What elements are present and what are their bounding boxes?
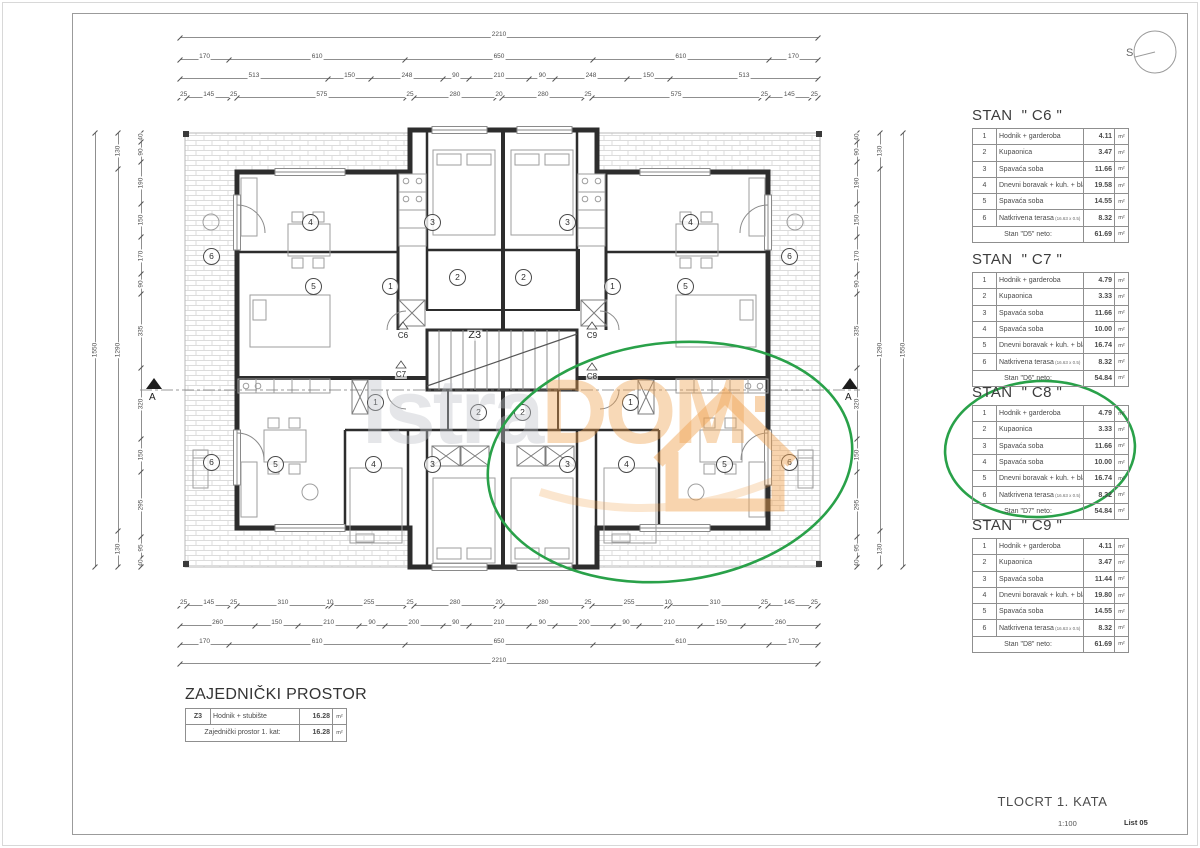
room-area: 4.79 xyxy=(1084,273,1115,289)
total-row: Stan "D5" neto:61.69m² xyxy=(973,226,1129,242)
total-area: 61.69 xyxy=(1084,226,1115,242)
room-area: 14.55 xyxy=(1084,194,1115,210)
room-number: 6 xyxy=(973,210,997,226)
room-area: 16.28 xyxy=(300,709,333,725)
room-number: 2 xyxy=(973,145,997,161)
room-name: Natkrivena terasa (16.63 x 0.5) xyxy=(997,487,1084,503)
area-unit: m² xyxy=(1115,454,1129,470)
room-name: Dnevni boravak + kuh. + blag. xyxy=(997,587,1084,603)
room-name: Natkrivena terasa (16.63 x 0.5) xyxy=(997,620,1084,636)
room-row: 2Kupaonica3.47m² xyxy=(973,555,1129,571)
area-unit: m² xyxy=(1115,273,1129,289)
area-unit: m² xyxy=(1115,555,1129,571)
room-number: 5 xyxy=(973,604,997,620)
room-name-note: (16.63 x 0.5) xyxy=(1054,216,1081,221)
room-number: 2 xyxy=(973,422,997,438)
room-name: Spavaća soba xyxy=(997,321,1084,337)
apartment-block: STAN " C6 "1Hodnik + garderoba4.11m²2Kup… xyxy=(972,107,1130,243)
area-unit: m² xyxy=(1115,226,1129,242)
sheet-number: List 05 xyxy=(1124,818,1148,827)
room-name-note: (16.63 x 0.5) xyxy=(1054,493,1081,498)
room-number: 5 xyxy=(973,338,997,354)
area-table: 1Hodnik + garderoba4.79m²2Kupaonica3.33m… xyxy=(972,272,1129,387)
apartment-title: STAN " C6 " xyxy=(972,107,1130,124)
drawing-sheet: 435126341526123456123456C6Z3C9C7C8221017… xyxy=(0,0,1200,848)
room-name: Spavaća soba xyxy=(997,161,1084,177)
room-name: Natkrivena terasa (16.63 x 0.5) xyxy=(997,354,1084,370)
room-number: 1 xyxy=(973,406,997,422)
area-unit: m² xyxy=(1115,145,1129,161)
room-area: 4.11 xyxy=(1084,129,1115,145)
total-label: Stan "D5" neto: xyxy=(973,226,1084,242)
area-unit: m² xyxy=(1115,161,1129,177)
area-unit: m² xyxy=(1115,305,1129,321)
room-row: 5Spavaća soba14.55m² xyxy=(973,194,1129,210)
room-name: Dnevni boravak + kuh. + blag. xyxy=(997,338,1084,354)
room-area: 10.00 xyxy=(1084,454,1115,470)
room-row: 3Spavaća soba11.66m² xyxy=(973,161,1129,177)
total-label: Zajednički prostor 1. kat: xyxy=(186,725,300,741)
room-name: Dnevni boravak + kuh. + blag. xyxy=(997,471,1084,487)
room-name: Spavaća soba xyxy=(997,604,1084,620)
common-area-table-block: ZAJEDNIČKI PROSTORZ3Hodnik + stubište16.… xyxy=(185,686,445,742)
total-area: 61.69 xyxy=(1084,636,1115,652)
room-row: 1Hodnik + garderoba4.79m² xyxy=(973,273,1129,289)
room-name: Natkrivena terasa (16.63 x 0.5) xyxy=(997,210,1084,226)
room-number: 5 xyxy=(973,471,997,487)
area-unit: m² xyxy=(1115,636,1129,652)
area-unit: m² xyxy=(333,725,347,741)
room-name: Spavaća soba xyxy=(997,305,1084,321)
area-unit: m² xyxy=(1115,487,1129,503)
area-unit: m² xyxy=(1115,210,1129,226)
room-area: 11.44 xyxy=(1084,571,1115,587)
room-name: Kupaonica xyxy=(997,289,1084,305)
room-area: 11.66 xyxy=(1084,161,1115,177)
sheet-scale: 1:100 xyxy=(1058,819,1077,828)
total-area: 16.28 xyxy=(300,725,333,741)
room-name-note: (16.63 x 0.5) xyxy=(1054,360,1081,365)
room-area: 3.33 xyxy=(1084,422,1115,438)
area-unit: m² xyxy=(1115,571,1129,587)
area-unit: m² xyxy=(1115,338,1129,354)
room-area: 8.32 xyxy=(1084,487,1115,503)
room-area: 3.47 xyxy=(1084,555,1115,571)
room-area: 14.55 xyxy=(1084,604,1115,620)
area-unit: m² xyxy=(1115,354,1129,370)
area-table: 1Hodnik + garderoba4.11m²2Kupaonica3.47m… xyxy=(972,538,1129,653)
area-unit: m² xyxy=(1115,620,1129,636)
room-row: 2Kupaonica3.33m² xyxy=(973,289,1129,305)
room-area: 3.33 xyxy=(1084,289,1115,305)
total-row: Zajednički prostor 1. kat:16.28m² xyxy=(186,725,347,741)
room-area: 4.79 xyxy=(1084,406,1115,422)
area-table: Z3Hodnik + stubište16.28m²Zajednički pro… xyxy=(185,708,347,742)
room-number: 3 xyxy=(973,438,997,454)
apartment-block: STAN " C8 "1Hodnik + garderoba4.79m²2Kup… xyxy=(972,384,1130,520)
area-unit: m² xyxy=(1115,438,1129,454)
room-row: 1Hodnik + garderoba4.11m² xyxy=(973,539,1129,555)
room-area: 11.66 xyxy=(1084,305,1115,321)
room-area: 19.58 xyxy=(1084,177,1115,193)
room-number: 5 xyxy=(973,194,997,210)
room-number: 6 xyxy=(973,487,997,503)
room-name: Spavaća soba xyxy=(997,438,1084,454)
room-area: 19.80 xyxy=(1084,587,1115,603)
total-row: Stan "D8" neto:61.69m² xyxy=(973,636,1129,652)
room-number: 1 xyxy=(973,273,997,289)
area-unit: m² xyxy=(1115,604,1129,620)
total-label: Stan "D8" neto: xyxy=(973,636,1084,652)
area-unit: m² xyxy=(1115,539,1129,555)
room-area: 16.74 xyxy=(1084,338,1115,354)
room-row: 4Dnevni boravak + kuh. + blag.19.80m² xyxy=(973,587,1129,603)
room-row: 5Dnevni boravak + kuh. + blag.16.74m² xyxy=(973,471,1129,487)
room-row: 1Hodnik + garderoba4.11m² xyxy=(973,129,1129,145)
room-name: Spavaća soba xyxy=(997,194,1084,210)
room-number: 1 xyxy=(973,539,997,555)
room-name: Kupaonica xyxy=(997,145,1084,161)
room-row: 6Natkrivena terasa (16.63 x 0.5)8.32m² xyxy=(973,487,1129,503)
room-number: 4 xyxy=(973,454,997,470)
common-area-title: ZAJEDNIČKI PROSTOR xyxy=(185,686,445,704)
room-area: 11.66 xyxy=(1084,438,1115,454)
room-area: 4.11 xyxy=(1084,539,1115,555)
room-number: 3 xyxy=(973,161,997,177)
room-row: 6Natkrivena terasa (16.63 x 0.5)8.32m² xyxy=(973,354,1129,370)
room-number: 3 xyxy=(973,305,997,321)
room-area: 16.74 xyxy=(1084,471,1115,487)
room-area: 8.32 xyxy=(1084,210,1115,226)
room-area: 3.47 xyxy=(1084,145,1115,161)
room-name: Hodnik + garderoba xyxy=(997,129,1084,145)
area-unit: m² xyxy=(1115,471,1129,487)
room-name-note: (16.63 x 0.5) xyxy=(1054,626,1081,631)
room-name: Hodnik + garderoba xyxy=(997,406,1084,422)
room-number: 4 xyxy=(973,321,997,337)
room-row: 4Spavaća soba10.00m² xyxy=(973,454,1129,470)
room-row: 4Dnevni boravak + kuh. + blag.19.58m² xyxy=(973,177,1129,193)
room-row: 4Spavaća soba10.00m² xyxy=(973,321,1129,337)
apartment-title: STAN " C7 " xyxy=(972,251,1130,268)
room-number: 2 xyxy=(973,555,997,571)
room-number: 3 xyxy=(973,571,997,587)
room-name: Hodnik + garderoba xyxy=(997,273,1084,289)
room-area: 10.00 xyxy=(1084,321,1115,337)
section-marker-label-left: A xyxy=(149,392,156,403)
compass-north-label: S xyxy=(1126,47,1133,59)
room-name: Kupaonica xyxy=(997,555,1084,571)
room-name: Hodnik + garderoba xyxy=(997,539,1084,555)
room-name: Kupaonica xyxy=(997,422,1084,438)
apartment-title: STAN " C9 " xyxy=(972,517,1130,534)
area-unit: m² xyxy=(1115,194,1129,210)
room-number: 4 xyxy=(973,587,997,603)
area-unit: m² xyxy=(1115,289,1129,305)
section-marker-label-right: A xyxy=(845,392,852,403)
room-number: 4 xyxy=(973,177,997,193)
area-unit: m² xyxy=(1115,177,1129,193)
room-name: Hodnik + stubište xyxy=(211,709,300,725)
room-row: 5Dnevni boravak + kuh. + blag.16.74m² xyxy=(973,338,1129,354)
room-number: 6 xyxy=(973,620,997,636)
sheet-title: TLOCRT 1. KATA xyxy=(950,794,1155,809)
apartment-title: STAN " C8 " xyxy=(972,384,1130,401)
area-unit: m² xyxy=(333,709,347,725)
room-row: 6Natkrivena terasa (16.63 x 0.5)8.32m² xyxy=(973,210,1129,226)
room-row: 3Spavaća soba11.66m² xyxy=(973,438,1129,454)
room-name: Spavaća soba xyxy=(997,571,1084,587)
area-unit: m² xyxy=(1115,587,1129,603)
room-row: 3Spavaća soba11.44m² xyxy=(973,571,1129,587)
room-number: 2 xyxy=(973,289,997,305)
room-row: 2Kupaonica3.33m² xyxy=(973,422,1129,438)
room-row: 6Natkrivena terasa (16.63 x 0.5)8.32m² xyxy=(973,620,1129,636)
apartment-block: STAN " C7 "1Hodnik + garderoba4.79m²2Kup… xyxy=(972,251,1130,387)
watermark-house-icon xyxy=(540,396,792,508)
room-number: Z3 xyxy=(186,709,211,725)
room-name: Dnevni boravak + kuh. + blag. xyxy=(997,177,1084,193)
room-row: 1Hodnik + garderoba4.79m² xyxy=(973,406,1129,422)
area-table: 1Hodnik + garderoba4.11m²2Kupaonica3.47m… xyxy=(972,128,1129,243)
room-row: Z3Hodnik + stubište16.28m² xyxy=(186,709,347,725)
room-number: 6 xyxy=(973,354,997,370)
room-name: Spavaća soba xyxy=(997,454,1084,470)
area-unit: m² xyxy=(1115,422,1129,438)
area-unit: m² xyxy=(1115,321,1129,337)
area-unit: m² xyxy=(1115,129,1129,145)
room-row: 5Spavaća soba14.55m² xyxy=(973,604,1129,620)
area-unit: m² xyxy=(1115,406,1129,422)
apartment-block: STAN " C9 "1Hodnik + garderoba4.11m²2Kup… xyxy=(972,517,1130,653)
room-area: 8.32 xyxy=(1084,620,1115,636)
room-row: 3Spavaća soba11.66m² xyxy=(973,305,1129,321)
room-number: 1 xyxy=(973,129,997,145)
room-area: 8.32 xyxy=(1084,354,1115,370)
room-row: 2Kupaonica3.47m² xyxy=(973,145,1129,161)
area-table: 1Hodnik + garderoba4.79m²2Kupaonica3.33m… xyxy=(972,405,1129,520)
